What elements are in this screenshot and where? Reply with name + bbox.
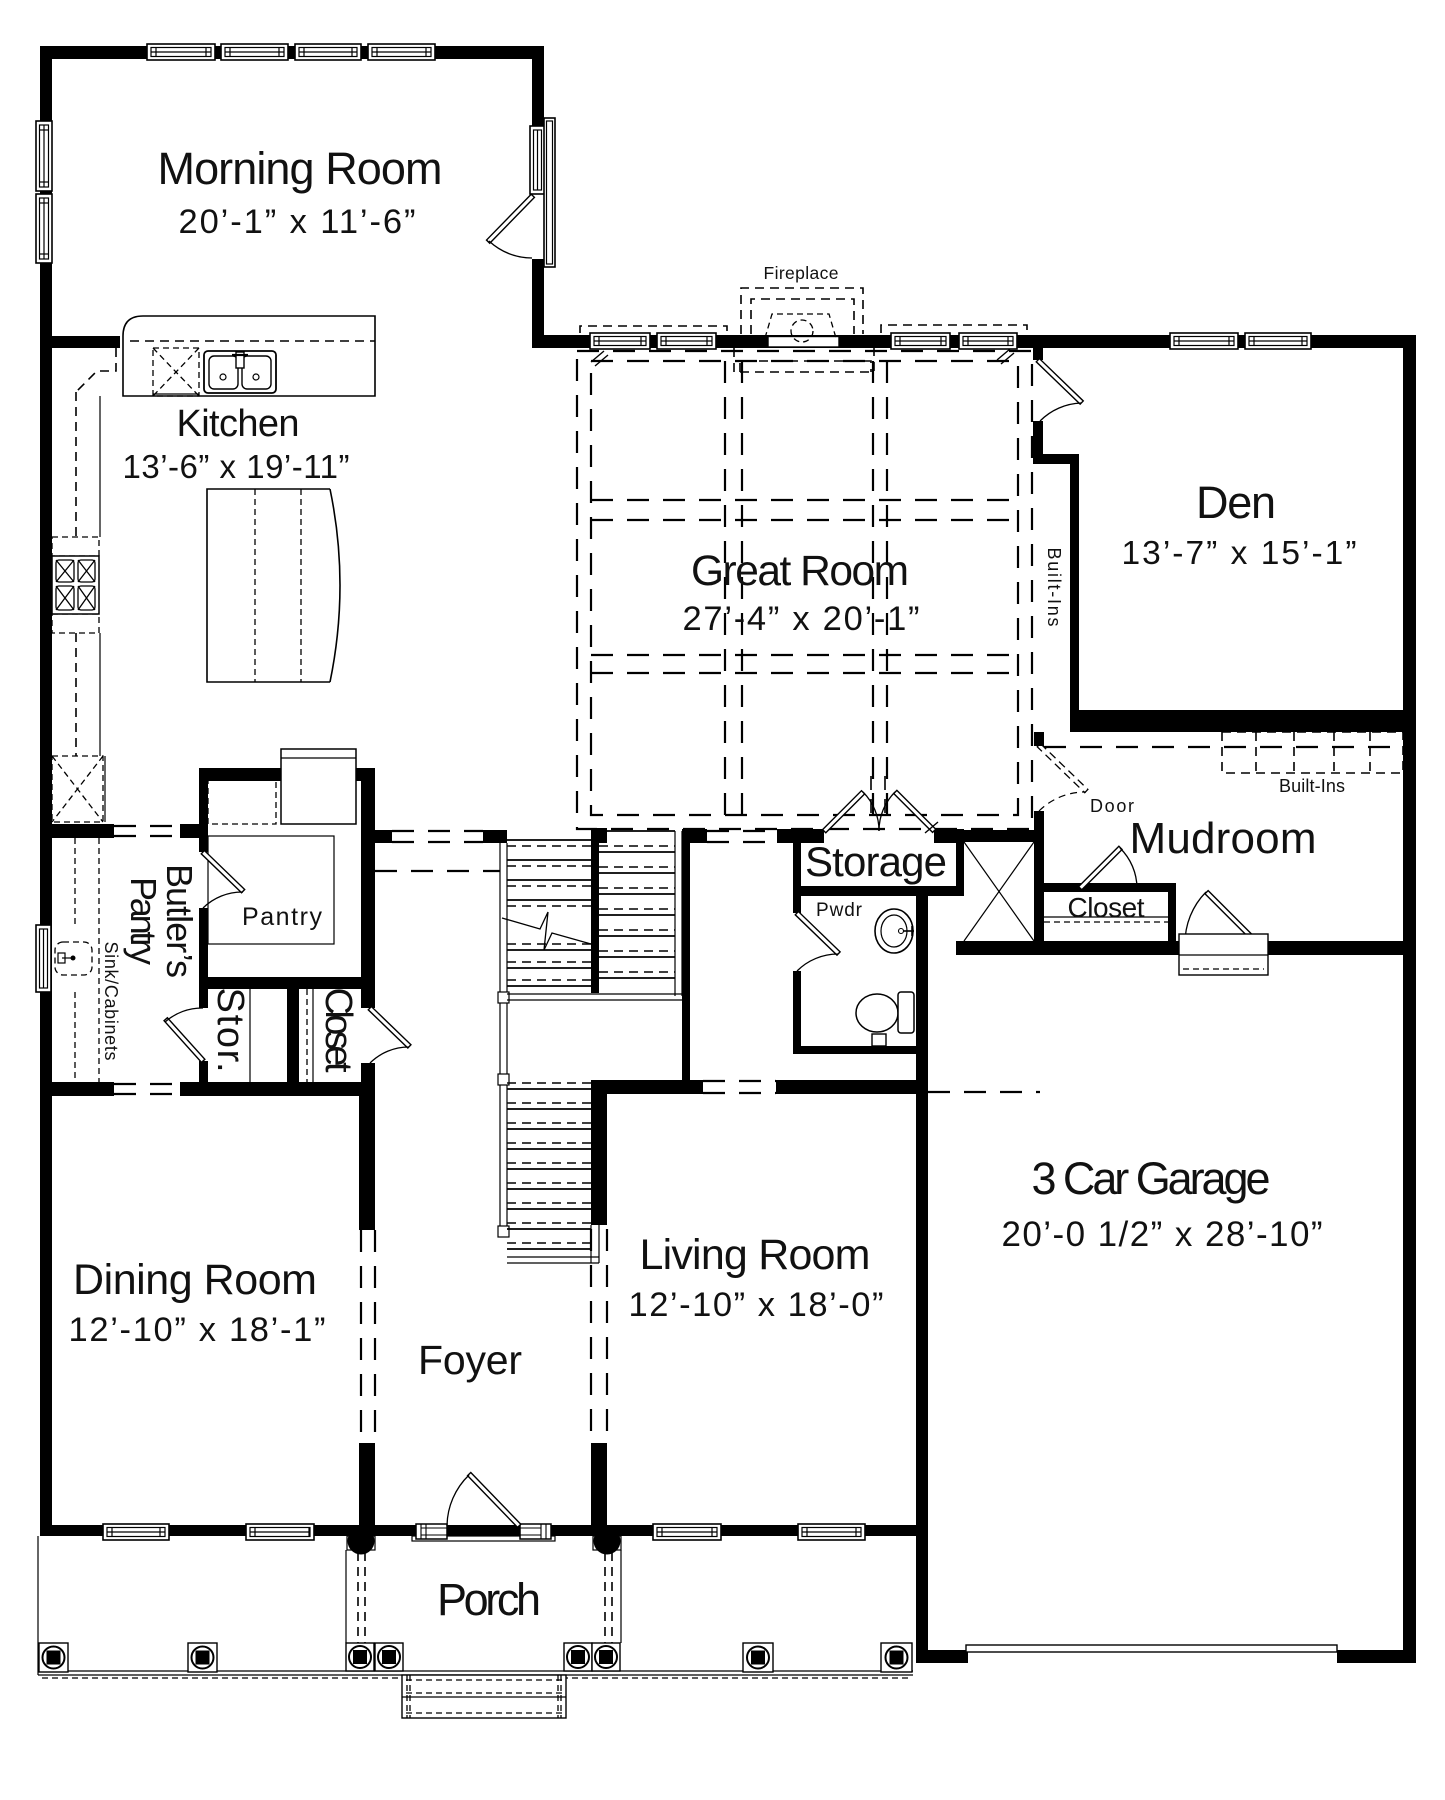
svg-text:Pwdr: Pwdr [816, 900, 863, 921]
svg-text:Closet: Closet [317, 988, 359, 1073]
svg-text:Door: Door [1090, 796, 1134, 816]
svg-text:Dining Room: Dining Room [73, 1256, 317, 1304]
svg-text:Kitchen: Kitchen [177, 403, 300, 445]
svg-text:13’-7” x 15’-1”: 13’-7” x 15’-1” [1122, 535, 1357, 572]
svg-text:Built-Ins: Built-Ins [1044, 548, 1064, 627]
svg-text:12’-10” x 18’-1”: 12’-10” x 18’-1” [69, 1311, 326, 1349]
svg-text:Built-Ins: Built-Ins [1279, 776, 1345, 796]
svg-text:Mudroom: Mudroom [1130, 814, 1317, 863]
svg-text:Pantry: Pantry [242, 903, 323, 931]
svg-text:Stor.: Stor. [209, 988, 251, 1073]
svg-text:Foyer: Foyer [418, 1337, 522, 1383]
svg-text:13’-6” x 19’-11”: 13’-6” x 19’-11” [123, 448, 350, 485]
svg-text:Pantry: Pantry [123, 877, 164, 965]
svg-text:12’-10” x 18’-0”: 12’-10” x 18’-0” [629, 1286, 884, 1324]
svg-text:Sink/Cabinets: Sink/Cabinets [101, 942, 121, 1061]
svg-text:20’-0 1/2” x 28’-10”: 20’-0 1/2” x 28’-10” [1002, 1215, 1323, 1254]
svg-text:Fireplace: Fireplace [764, 263, 839, 283]
svg-text:Storage: Storage [805, 838, 947, 885]
svg-text:20’-1” x 11’-6”: 20’-1” x 11’-6” [179, 203, 416, 241]
svg-text:Closet: Closet [1068, 892, 1145, 923]
svg-text:27’-4” x 20’-1”: 27’-4” x 20’-1” [683, 600, 920, 638]
svg-text:Porch: Porch [437, 1574, 541, 1625]
svg-text:Great Room: Great Room [691, 548, 909, 595]
svg-text:Den: Den [1196, 477, 1276, 528]
svg-text:Living Room: Living Room [640, 1231, 871, 1279]
svg-text:Morning Room: Morning Room [158, 143, 443, 194]
svg-text:3 Car Garage: 3 Car Garage [1032, 1153, 1271, 1204]
svg-text:Butler’s: Butler’s [159, 864, 200, 978]
